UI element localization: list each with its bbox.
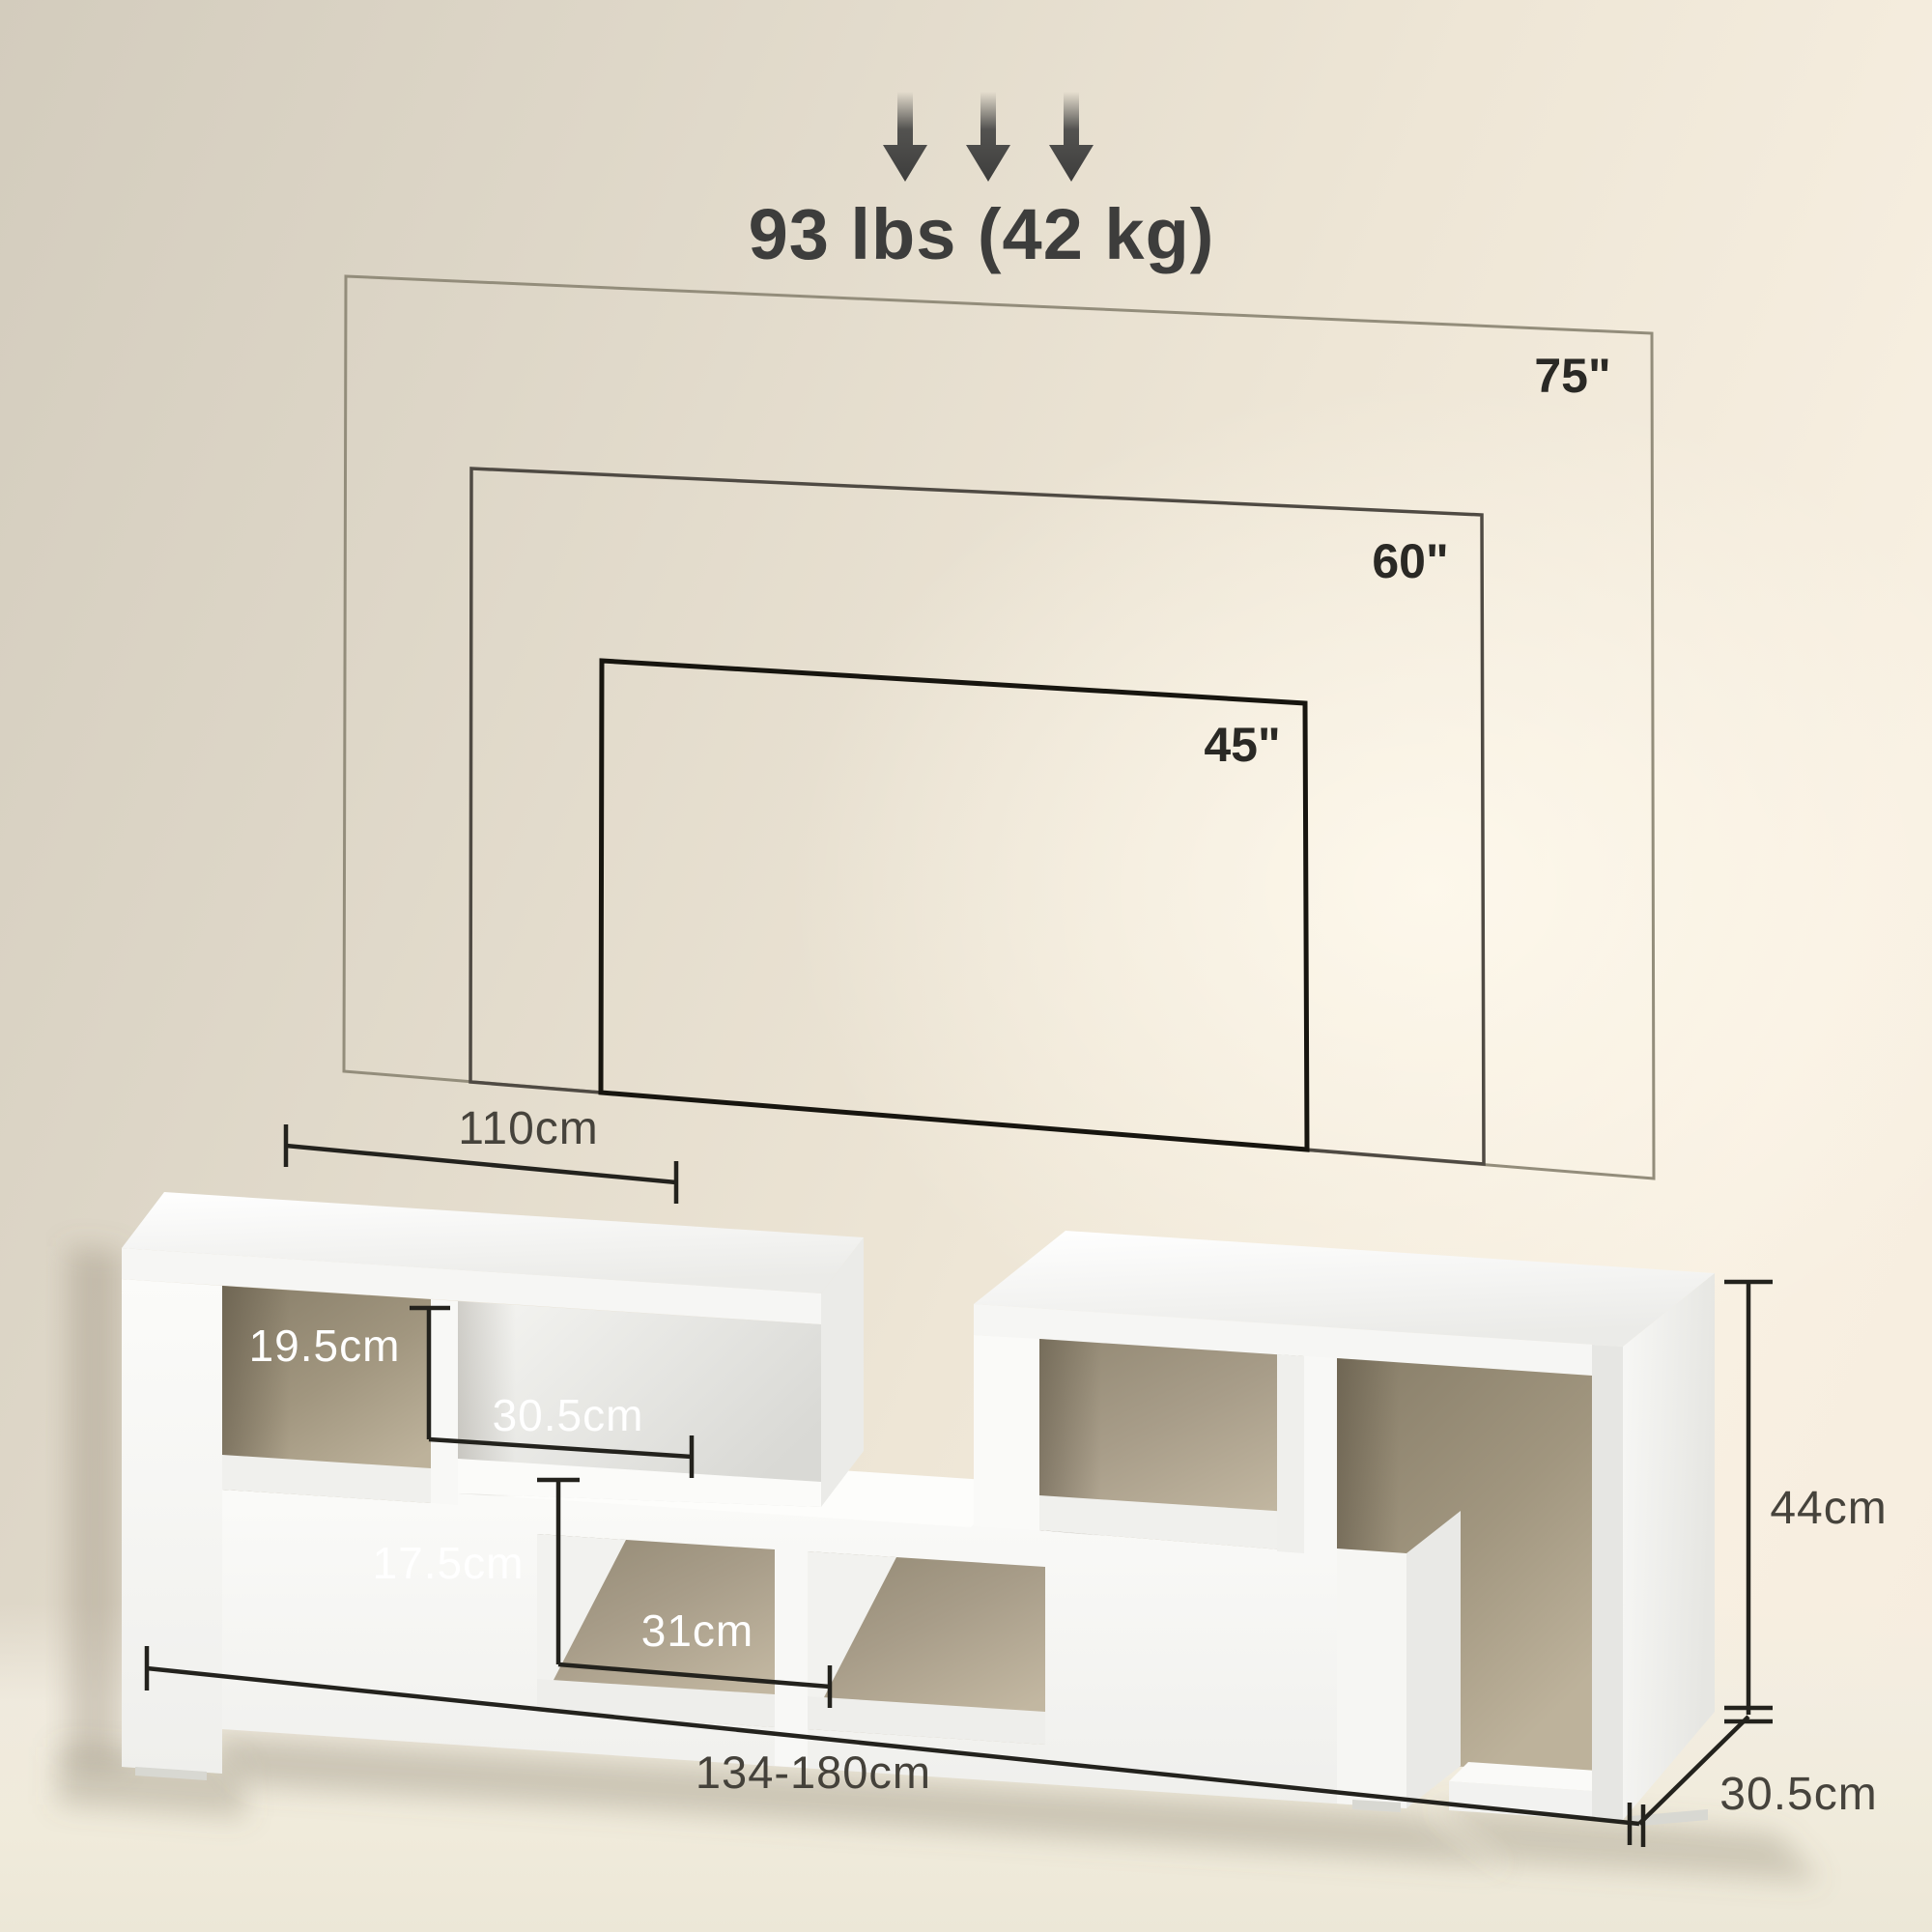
- down-arrow-icon: [883, 92, 927, 182]
- left-unit-divider: [431, 1299, 458, 1505]
- down-arrow-icon: [966, 92, 1010, 182]
- diagram-canvas: 75" 60" 45" 93 lbs (42 kg): [0, 0, 1932, 1932]
- dim-label-upper-cubby-height: 19.5cm: [249, 1321, 401, 1371]
- tv-size-label-45: 45": [1204, 718, 1280, 772]
- dim-label-top-width: 110cm: [458, 1103, 599, 1154]
- dim-label-extendable-length: 134-180cm: [696, 1747, 931, 1798]
- lower-unit-right-side: [1406, 1511, 1461, 1808]
- left-unit-left-panel: [122, 1279, 222, 1774]
- load-arrow-icons: [883, 92, 1094, 182]
- dim-label-lower-cubby-width: 31cm: [641, 1605, 753, 1656]
- right-unit-divider-inner: [1277, 1354, 1304, 1553]
- tv-outline-75in: [344, 276, 1654, 1179]
- dim-label-upper-cubby-width: 30.5cm: [493, 1390, 644, 1440]
- tv-size-label-75: 75": [1534, 349, 1610, 403]
- product-dimension-diagram: 75" 60" 45" 93 lbs (42 kg): [0, 0, 1932, 1932]
- dim-label-lower-cubby-height: 17.5cm: [373, 1538, 525, 1588]
- tv-size-label-60: 60": [1372, 534, 1448, 588]
- tv-outline-60in: [470, 469, 1484, 1164]
- tv-outlines: [344, 276, 1654, 1179]
- right-unit-side-front-edge: [1592, 1345, 1623, 1820]
- weight-capacity-label: 93 lbs (42 kg): [749, 194, 1215, 274]
- lower-unit-right-end-patch: [1337, 1548, 1406, 1808]
- dim-label-overall-height: 44cm: [1770, 1483, 1887, 1534]
- tv-outline-45in: [601, 661, 1307, 1150]
- dim-line-overall-height: [1724, 1282, 1773, 1721]
- right-unit-divider: [1304, 1356, 1337, 1555]
- down-arrow-icon: [1049, 92, 1094, 182]
- right-unit-left-leg: [974, 1335, 1039, 1530]
- dim-label-depth: 30.5cm: [1719, 1769, 1877, 1820]
- right-unit-right-side: [1623, 1273, 1715, 1820]
